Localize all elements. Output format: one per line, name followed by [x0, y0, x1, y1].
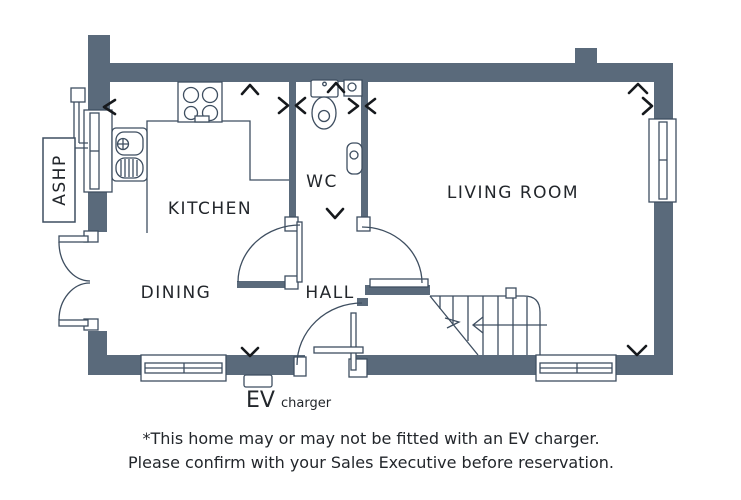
- window-kitchen-left: [84, 110, 112, 192]
- ev-label: EV: [246, 388, 275, 413]
- door-hall-living: [362, 227, 422, 283]
- sink: [112, 128, 147, 181]
- room-labels: KITCHEN DINING WC HALL LIVING ROOM: [141, 172, 579, 303]
- floor-plan-drawing: ASHP EV charger KITCHEN DINING WC HALL L…: [0, 0, 741, 500]
- basin: [347, 143, 362, 174]
- disclaimer-line-2: Please confirm with your Sales Executive…: [128, 453, 614, 472]
- window-dining: [141, 355, 226, 381]
- window-living-right: [649, 119, 676, 202]
- wall-openings: [86, 232, 352, 375]
- chevron-down-dining: [242, 348, 258, 356]
- disclaimer-line-1: *This home may or may not be fitted with…: [142, 429, 599, 448]
- french-doors: [59, 236, 90, 326]
- jamb-dining-stub: [285, 276, 298, 289]
- doors: [59, 222, 422, 370]
- stairs-newel-post: [506, 288, 516, 298]
- hinge-front-door: [357, 298, 368, 306]
- wc-label: WC: [306, 172, 338, 192]
- wc-corner-unit: [344, 80, 362, 96]
- jamb-front-door-left: [294, 357, 306, 376]
- chevron-right-wc-right-wall: [349, 99, 358, 113]
- jamb-wc-right: [357, 217, 370, 231]
- wc-fixtures: [311, 80, 362, 174]
- hob: [178, 82, 222, 122]
- dining-label: DINING: [141, 283, 212, 303]
- opening-front-door: [305, 355, 352, 375]
- chevron-down-living: [628, 346, 646, 355]
- radiator-hall: [370, 279, 428, 287]
- chevron-up-kitchen: [242, 85, 258, 94]
- chevron-right-wc-left-wall: [279, 98, 288, 113]
- disclaimer: *This home may or may not be fitted with…: [128, 429, 614, 472]
- stairs: [430, 288, 547, 355]
- chevron-markers: [104, 83, 652, 356]
- kitchen-label: KITCHEN: [168, 199, 252, 219]
- stairs-direction-arrow: [473, 317, 547, 333]
- ashp-unit: ASHP: [43, 138, 75, 222]
- wall-top: [88, 63, 673, 82]
- toilet: [311, 80, 338, 129]
- wall-protrusion-top-right: [575, 48, 597, 63]
- wall-wc-left: [289, 82, 296, 218]
- jamb-wc-left: [285, 217, 298, 231]
- wall-dining-hall-stub: [237, 281, 289, 288]
- windows: [71, 88, 676, 381]
- chevron-up-living-corner: [629, 84, 647, 93]
- floor-plan-page: ASHP EV charger KITCHEN DINING WC HALL L…: [0, 0, 741, 500]
- window-living-bottom: [536, 355, 616, 381]
- chevron-left-wc-left-wall: [296, 98, 305, 113]
- ev-charger-suffix-label: charger: [281, 396, 332, 411]
- chevron-right-living-corner: [643, 98, 652, 114]
- ev-charger-unit: [244, 375, 272, 387]
- chevron-down-wc: [327, 209, 343, 218]
- living-room-label: LIVING ROOM: [447, 183, 579, 203]
- ashp-label: ASHP: [50, 154, 70, 205]
- hall-label: HALL: [305, 283, 354, 303]
